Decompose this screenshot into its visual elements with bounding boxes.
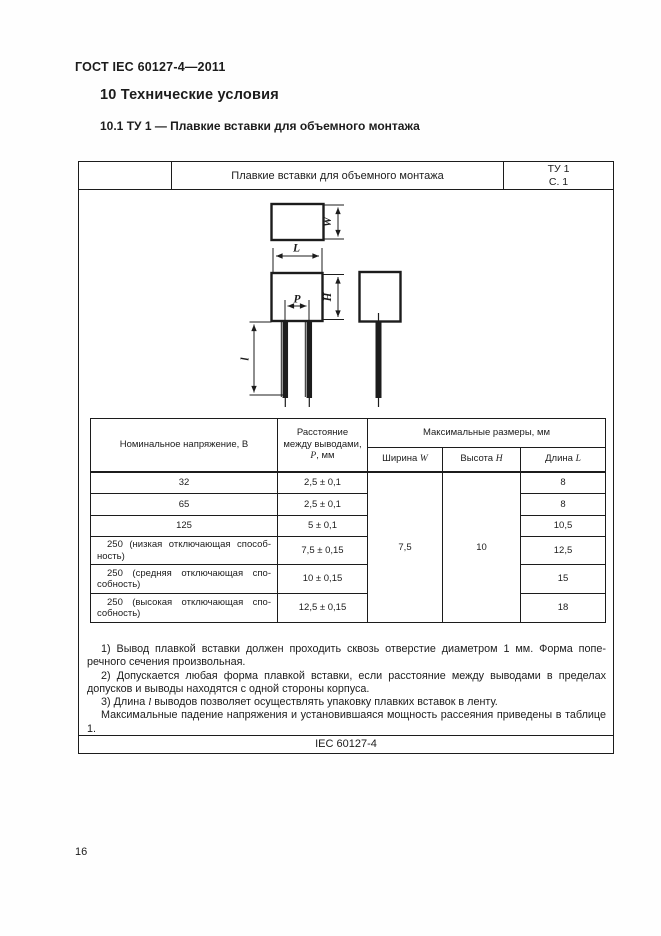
spec-sheet-box: Плавкие вставки для объемного монтажа ТУ… (78, 161, 614, 754)
doc-number: ГОСТ IEC 60127-4—2011 (75, 60, 225, 74)
col-header-max-dims: Максимальные размеры, мм (368, 419, 606, 448)
spec-title-row: Плавкие вставки для объемного монтажа ТУ… (79, 162, 613, 190)
voltage-cell: 250 (средняя отключающая спо­собность) (91, 565, 278, 594)
voltage-cell: 125 (91, 516, 278, 537)
distance-cell: 2,5 ± 0,1 (278, 472, 368, 494)
distance-cell: 10 ± 0,15 (278, 565, 368, 594)
note-1: 1) Вывод плавкой вставки должен проходит… (87, 643, 606, 670)
table-row: 250 (низкая отключающая способ­ность) 7,… (91, 537, 606, 565)
length-cell: 15 (521, 565, 606, 594)
lead-length-dim-label: l (240, 357, 252, 361)
table-row: 65 2,5 ± 0,1 8 (91, 494, 606, 516)
subsection-heading: 10.1 ТУ 1 — Плавкие вставки для объемног… (100, 119, 420, 133)
length-cell: 12,5 (521, 537, 606, 565)
spec-title: Плавкие вставки для объемного монтажа (172, 162, 504, 189)
voltage-cell: 250 (высокая отключающая спо­собность) (91, 594, 278, 623)
side-view-drawing (360, 272, 401, 407)
table-header-row-1: Номинальное напряжение, В Расстояние меж… (91, 419, 606, 448)
voltage-cell: 65 (91, 494, 278, 516)
notes-block: 1) Вывод плавкой вставки должен проходит… (87, 643, 606, 736)
distance-cell: 12,5 ± 0,15 (278, 594, 368, 623)
distance-cell: 5 ± 0,1 (278, 516, 368, 537)
fuse-link-technical-drawing: W (79, 190, 613, 418)
col-header-width: Ширина W (368, 448, 443, 472)
col-header-length: Длина L (521, 448, 606, 472)
voltage-cell: 32 (91, 472, 278, 494)
p-pitch-dim-label: P (293, 294, 301, 306)
document-page: ГОСТ IEC 60127-4—2011 10 Технические усл… (0, 0, 661, 936)
h-dim-label: H (322, 291, 334, 302)
length-cell: 8 (521, 472, 606, 494)
height-max-cell: 10 (443, 472, 521, 623)
length-cell: 18 (521, 594, 606, 623)
fuse-dimensions-table: Номинальное напряжение, В Расстояние меж… (90, 418, 606, 623)
table-row: 250 (средняя отключающая спо­собность) 1… (91, 565, 606, 594)
length-cell: 8 (521, 494, 606, 516)
page-number: 16 (75, 846, 87, 858)
spec-ref: ТУ 1 С. 1 (504, 162, 613, 189)
distance-cell: 7,5 ± 0,15 (278, 537, 368, 565)
voltage-cell: 250 (низкая отключающая способ­ность) (91, 537, 278, 565)
table-row: 32 2,5 ± 0,1 7,5 10 8 (91, 472, 606, 494)
distance-cell: 2,5 ± 0,1 (278, 494, 368, 516)
note-2: 2) Допускается любая форма плавкой встав… (87, 670, 606, 697)
front-view-drawing (250, 248, 345, 407)
spec-ref-number: ТУ 1 (548, 163, 570, 176)
section-heading: 10 Технические условия (100, 87, 279, 103)
col-header-voltage: Номинальное напряжение, В (91, 419, 278, 472)
col-header-distance: Расстояние между выводами, P, мм (278, 419, 368, 472)
col-header-height: Высота H (443, 448, 521, 472)
table-row: 250 (высокая отключающая спо­собность) 1… (91, 594, 606, 623)
note-4: Максимальные падение напряжения и устано… (87, 709, 606, 736)
table-row: 125 5 ± 0,1 10,5 (91, 516, 606, 537)
width-max-cell: 7,5 (368, 472, 443, 623)
length-cell: 10,5 (521, 516, 606, 537)
l-length-dim-label: L (292, 243, 300, 255)
spec-title-empty-cell (79, 162, 172, 189)
note-3: 3) Длина l выводов позволяет осуществлят… (87, 696, 606, 709)
spec-footer: IEC 60127-4 (79, 735, 613, 753)
spec-ref-sheet: С. 1 (549, 176, 568, 189)
w-dim-label: W (322, 216, 334, 227)
